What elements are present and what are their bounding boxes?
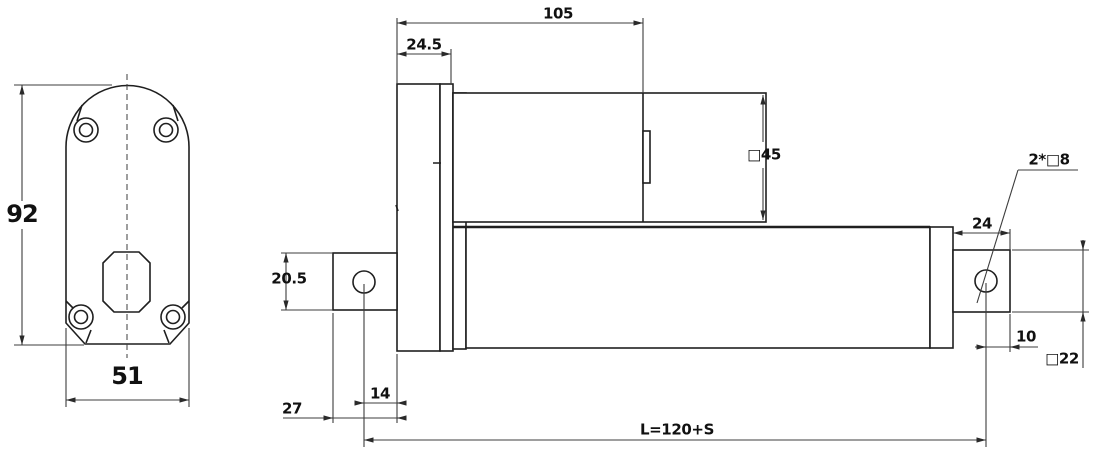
dim-rod-end-square22: □22 — [1012, 240, 1089, 368]
dim-label-overall-length: L=120+S — [640, 421, 714, 439]
mount-hole-top-left — [80, 124, 93, 137]
tube-end-cap — [930, 227, 953, 348]
motor-housing — [453, 93, 766, 222]
mount-hole-bottom-right — [167, 311, 180, 324]
dim-label-51: 51 — [111, 362, 143, 390]
dim-plate-24-5: 24.5 — [397, 36, 451, 85]
dim-label-24: 24 — [972, 215, 992, 233]
limit-switch-tab — [643, 131, 650, 183]
dim-label-10: 10 — [1016, 328, 1036, 346]
dim-rod-end-24: 24 — [953, 215, 1010, 251]
mount-hole-ring-top-right — [154, 118, 178, 142]
shaft-cutout-octagon — [103, 252, 150, 312]
mount-hole-bottom-left — [75, 311, 88, 324]
dim-label-2x-square8: 2*□8 — [1028, 151, 1069, 169]
side-view: 105 24.5 □45 20.5 27 — [271, 5, 1089, 448]
dim-label-24-5: 24.5 — [406, 36, 441, 54]
rear-mount-plate — [397, 84, 440, 351]
mount-hole-ring-bottom-right — [161, 305, 185, 329]
dim-label-92: 92 — [6, 200, 37, 228]
actuator-drawing: 92 51 — [0, 0, 1110, 456]
front-view: 92 51 — [6, 74, 189, 407]
dim-label-105: 105 — [543, 5, 573, 23]
dim-clevis-depth-27: 27 — [282, 313, 406, 423]
dim-label-square22: □22 — [1045, 350, 1079, 368]
drawing-canvas: 92 51 — [0, 0, 1110, 456]
dim-clevis-20-5: 20.5 — [271, 253, 333, 310]
dim-overall-length: L=120+S — [364, 421, 986, 441]
rear-clevis-block — [333, 253, 397, 310]
dim-label-square45: □45 — [747, 146, 781, 164]
outer-tube — [466, 227, 930, 348]
mount-hole-top-right — [160, 124, 173, 137]
dim-label-20-5: 20.5 — [271, 270, 306, 288]
mount-hole-ring-bottom-left — [69, 305, 93, 329]
dim-label-27: 27 — [282, 400, 302, 418]
front-rod-end-block — [953, 250, 1010, 312]
dim-label-14: 14 — [370, 385, 390, 403]
rear-plate-cap — [440, 84, 453, 351]
mount-hole-ring-top-left — [74, 118, 98, 142]
